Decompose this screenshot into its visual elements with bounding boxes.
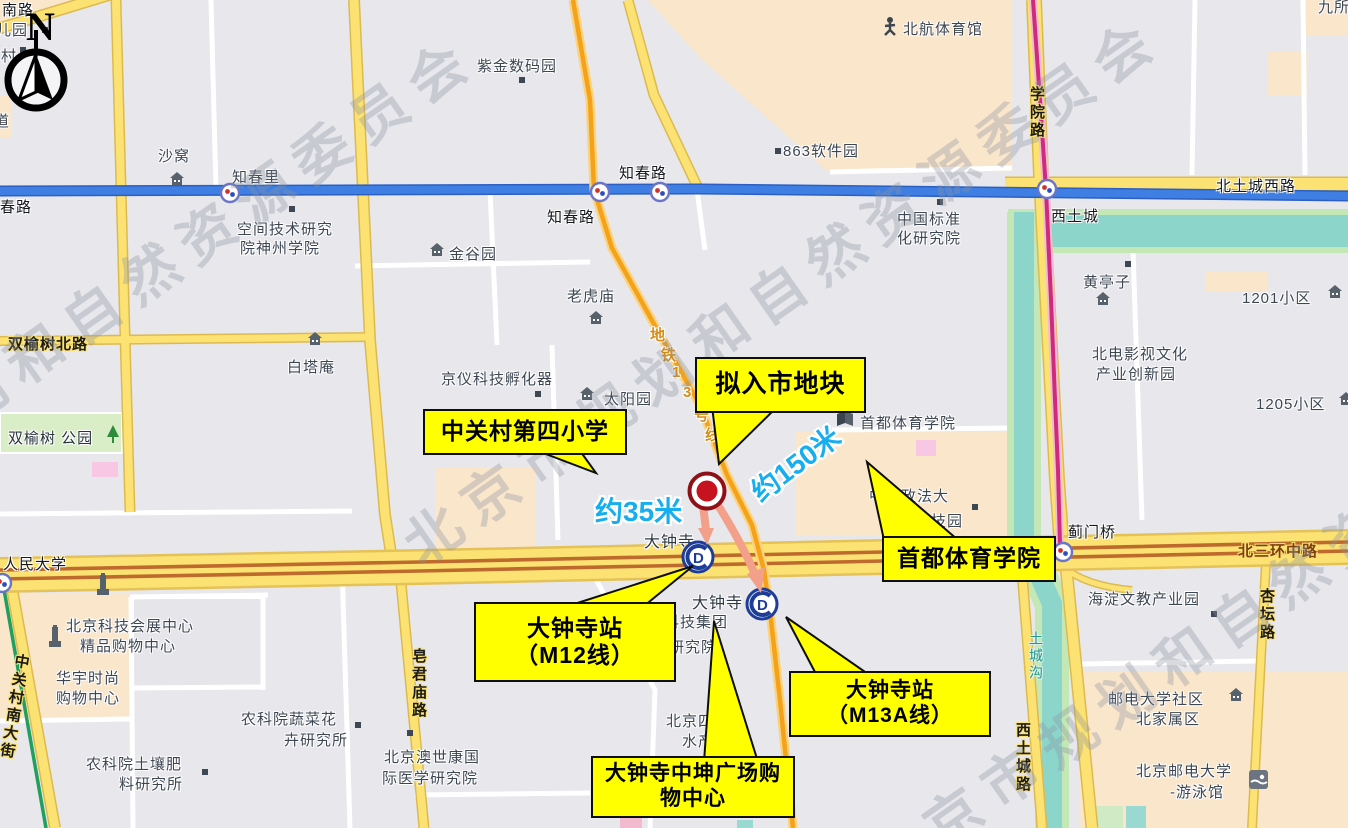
callout-text: （M12线） <box>515 642 635 669</box>
callout-station-m13a: 大钟寺站（M13A线） <box>789 671 991 737</box>
callout-site-parcel: 拟入市地块 <box>695 357 866 413</box>
callout-station-m12: 大钟寺站（M12线） <box>474 602 676 682</box>
north-compass: N <box>0 0 80 122</box>
callout-text: 拟入市地块 <box>715 370 845 400</box>
callout-mall: 大钟寺中坤广场购物中心 <box>591 756 795 818</box>
callout-pointer-site-parcel <box>712 406 778 464</box>
callout-text: 大钟寺中坤广场购 <box>605 762 781 787</box>
callout-text: 大钟寺站 <box>527 615 623 642</box>
callout-text: 物中心 <box>660 787 726 812</box>
callout-pointer-sport-institute <box>867 462 958 540</box>
distance-label: 约35米 <box>595 490 682 530</box>
annotation-layer <box>0 0 1348 828</box>
site-marker <box>690 474 725 509</box>
callout-school: 中关村第四小学 <box>423 409 627 455</box>
map-canvas: N 南路幼儿园村道沙窝知春里春路知春路知春路紫金数码园863软件园北航体育馆九所… <box>0 0 1348 828</box>
callout-text: 大钟寺站 <box>846 679 934 704</box>
callout-sport-institute: 首都体育学院 <box>882 536 1056 582</box>
callout-pointer-station-m13a <box>786 617 868 674</box>
callout-pointer-mall <box>704 621 758 762</box>
callout-pointer-station-m12 <box>568 566 693 606</box>
callout-text: （M13A线） <box>827 704 953 729</box>
distance-arrows <box>698 502 765 593</box>
compass-n-label: N <box>26 4 55 49</box>
callout-text: 首都体育学院 <box>897 545 1041 572</box>
callout-text: 中关村第四小学 <box>441 418 609 445</box>
